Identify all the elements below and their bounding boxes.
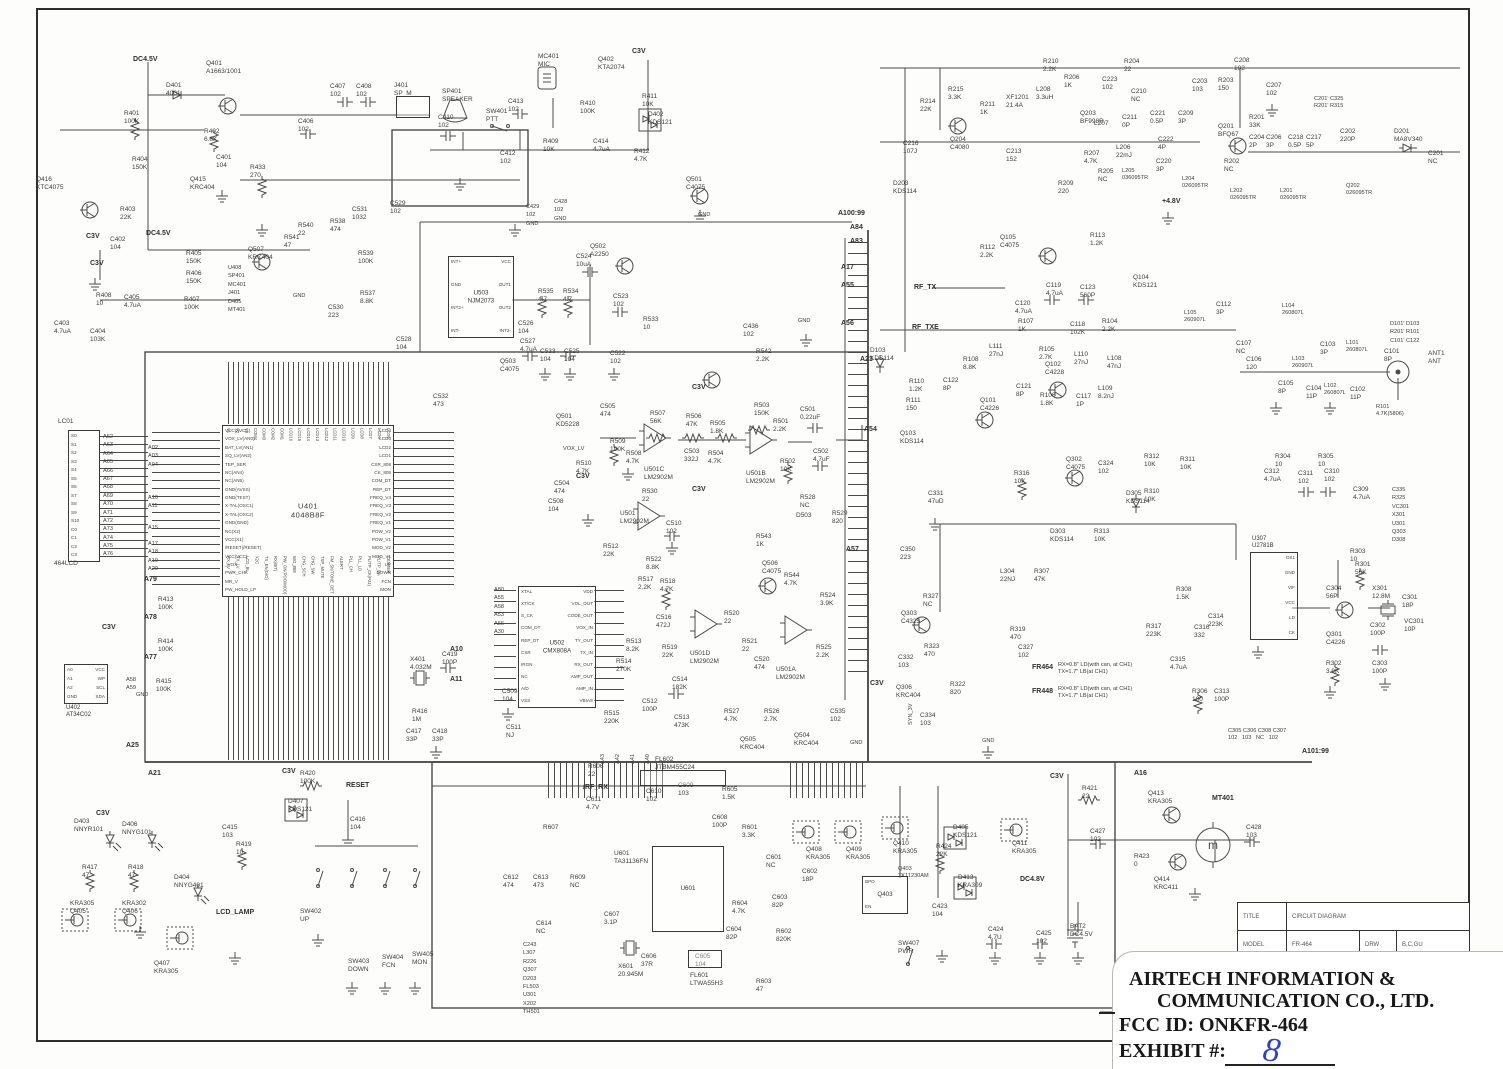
component-label: R524 3.9K bbox=[820, 592, 836, 608]
component-label: U601 TA31136FN bbox=[614, 850, 648, 866]
component-label: C104 11P bbox=[1306, 385, 1322, 401]
net-label: C3V bbox=[692, 384, 706, 393]
pin-label: PLL_CH bbox=[348, 556, 352, 594]
pin-label: A0 bbox=[67, 668, 73, 673]
pin-label: GND(AVSS) bbox=[225, 488, 250, 493]
component-label: C103 3P bbox=[1320, 341, 1336, 357]
component-label: GND bbox=[293, 293, 305, 300]
pin-label: S8 bbox=[71, 502, 77, 507]
component-label: R503 150K bbox=[754, 402, 770, 418]
component-label: C107 NC bbox=[1236, 340, 1252, 356]
net-label: A78 bbox=[144, 614, 157, 623]
transistor-symbol bbox=[1335, 602, 1353, 618]
component-label: R411 10K bbox=[642, 93, 657, 109]
net-label: C3V bbox=[282, 768, 296, 777]
component-label: C527 4.7uA bbox=[520, 338, 537, 354]
component-label: MC401 MIC bbox=[538, 53, 559, 69]
pin-label: VCC bbox=[1285, 601, 1295, 606]
pin-label: VSS bbox=[521, 699, 530, 704]
component-label: A80 A55 A58 A53 A66 A30 bbox=[494, 586, 504, 636]
ic-pins-left: XTALXT/CKS_CKCOM_DTREP_DTCSRIRGNNCA/DVSS bbox=[521, 590, 540, 704]
component-label: Q401 A1663/1001 bbox=[206, 60, 241, 76]
component-label: R404 150K bbox=[132, 156, 148, 172]
transistor-symbol bbox=[1168, 854, 1186, 870]
pin-label: FREQ_V1 bbox=[370, 521, 391, 526]
pin-label: V3 bbox=[244, 428, 248, 441]
pin-label: POW_V2 bbox=[372, 530, 391, 535]
component-label: L205 036095TR bbox=[1122, 168, 1148, 182]
component-label: C312 4.7uA bbox=[1264, 468, 1281, 484]
pin-label: NC(AN5) bbox=[225, 479, 244, 484]
component-label: ANT1 ANT bbox=[1428, 350, 1445, 366]
component-label: C324 102 bbox=[1098, 460, 1114, 476]
component-label: D413 KRA309 bbox=[958, 874, 982, 890]
ic-pins-left: S0S1S2S3S4S5S6S7S8S9S10C0C1C2C3 bbox=[71, 434, 79, 558]
component-label: Q503 C4075 bbox=[500, 358, 519, 374]
component-label: R327 NC bbox=[923, 593, 939, 609]
component-label: R513 8.2K bbox=[626, 638, 642, 654]
component-label: C335 R325 VC301 X301 U301 Q303 D308 bbox=[1392, 486, 1409, 545]
stamp-company-line2: COMMUNICATION CO., LTD. bbox=[1157, 990, 1434, 1013]
component-label: R542 2.2K bbox=[756, 348, 772, 364]
component-label: C314 223K bbox=[1208, 613, 1224, 629]
component-label: D406 NNYG101 bbox=[122, 821, 152, 837]
stamp-company-line1: AIRTECH INFORMATION & bbox=[1129, 968, 1396, 991]
led-symbol bbox=[106, 831, 121, 851]
pin-label: IRGN bbox=[521, 663, 532, 668]
pin-label: REP_DT bbox=[521, 639, 539, 644]
component-label: R521 22 bbox=[742, 638, 758, 654]
component-label: C503 332J bbox=[684, 448, 700, 464]
component-label: Q501 KD5228 bbox=[556, 413, 580, 429]
net-label: A84 bbox=[850, 224, 863, 233]
pin-label: COM_DT bbox=[521, 626, 540, 631]
pin-label: ALERT bbox=[339, 556, 343, 594]
component-label: C601 NC bbox=[766, 854, 782, 870]
component-label: A58 A59 bbox=[126, 676, 136, 693]
pin-label: LCD16 bbox=[288, 428, 292, 441]
component-label: D103 KDS114 bbox=[870, 347, 894, 363]
pin-label: XTAL bbox=[521, 590, 532, 595]
component-label: L204 026095TR bbox=[1182, 176, 1208, 190]
component-label: D203 KDS114 bbox=[893, 180, 917, 196]
component-label: D101' D103 R201' R101 C101' C122 bbox=[1390, 320, 1419, 345]
component-label: C413 102 bbox=[508, 98, 524, 114]
diode-symbol bbox=[1399, 144, 1417, 152]
component-label: C513 473K bbox=[674, 714, 690, 730]
pin-label: S7 bbox=[71, 494, 77, 499]
component-label: C602 18P bbox=[802, 868, 818, 884]
ground-symbol bbox=[800, 334, 812, 346]
component-label: C309 4.7uA bbox=[1353, 486, 1370, 502]
net-label: A79 bbox=[144, 576, 157, 585]
component-label: L110 27nJ bbox=[1074, 351, 1088, 367]
component-label: R405 150K bbox=[186, 250, 202, 266]
component-label: R537 8.8K bbox=[360, 290, 376, 306]
component-label: C603 82P bbox=[772, 894, 788, 910]
component-label: SW401 PTT bbox=[486, 108, 507, 124]
transistor-symbol bbox=[218, 98, 236, 114]
pin-label: DS1 bbox=[1286, 556, 1295, 561]
component-label: C305 C306 C308 C307 102 103 NC 102 bbox=[1228, 728, 1286, 742]
pin-label: CHG_SW bbox=[311, 556, 315, 594]
pin-label: LCD1 bbox=[379, 454, 391, 459]
component-label: A10 A11 bbox=[148, 494, 158, 511]
component-label: L208 3.3uH bbox=[1036, 86, 1053, 102]
pin-label: GND(TEST) bbox=[225, 496, 250, 501]
component-label: C509 104 bbox=[502, 688, 518, 704]
pin-label: A/D bbox=[521, 687, 529, 692]
net-label: A57 bbox=[846, 546, 859, 555]
component-label: Q101 C4226 bbox=[980, 397, 999, 413]
ground-symbol bbox=[982, 746, 994, 758]
component-label: C210 NC bbox=[1131, 88, 1147, 104]
resistor-symbol bbox=[646, 434, 668, 442]
resistor-symbol bbox=[682, 434, 704, 442]
pin-label: S9 bbox=[71, 511, 77, 516]
pin-label: FREQ_V2 bbox=[370, 513, 391, 518]
transistor-symbol bbox=[80, 202, 98, 218]
component-label: R406 150K bbox=[186, 270, 202, 286]
pin-label: /RESET(/RESET) bbox=[225, 546, 261, 551]
capacitor-symbol bbox=[807, 423, 823, 433]
ground-symbol bbox=[216, 190, 228, 202]
net-label: A100:99 bbox=[838, 210, 865, 219]
component-label: C404 103K bbox=[90, 328, 106, 344]
component-label: C201' C325 R201' R315 bbox=[1314, 96, 1343, 110]
component-label: R418 47 bbox=[128, 864, 144, 880]
title-block-row-title: TITLE CIRCUIT DIAGRAM bbox=[1238, 903, 1469, 931]
component-label: R302 3.9K bbox=[1326, 660, 1342, 676]
component-label: R416 1M bbox=[412, 708, 428, 724]
ground-symbol bbox=[989, 952, 1001, 964]
ic-pins-right: VDDVOL_OUTCODE_OUTVOX_INTY_OUTTX_INRX_OU… bbox=[567, 590, 593, 704]
ic-pins-left: INT+GNDINT2+INT- bbox=[451, 260, 464, 334]
component-label: L109 8.2nJ bbox=[1098, 385, 1114, 401]
component-label: Q415 KRC404 bbox=[190, 176, 215, 192]
net-label: A21 bbox=[148, 770, 161, 779]
component-label: R401 100K bbox=[124, 110, 140, 126]
pin-label: OUT2 bbox=[499, 306, 511, 311]
component-label: Q105 C4075 bbox=[1000, 234, 1019, 250]
pin-label: LCD9 bbox=[350, 428, 354, 441]
component-label: R207 4.7K bbox=[1084, 150, 1100, 166]
component-label: C606 37R bbox=[641, 953, 657, 969]
component-label: Q202 026095TR bbox=[1346, 183, 1372, 197]
component-label: C206 3P bbox=[1266, 134, 1282, 150]
pin-label: CSR_808 bbox=[371, 463, 391, 468]
component-label: R408 10 bbox=[96, 292, 112, 308]
ground-symbol bbox=[379, 982, 391, 994]
component-label: C423 104 bbox=[932, 903, 948, 919]
pin-label: CENTER bbox=[386, 556, 390, 594]
component-label: C607 3.1P bbox=[604, 911, 620, 927]
component-label: D303 KDS114 bbox=[1050, 528, 1074, 544]
ic-pins-right: VCCOUT1OUT2INT2- bbox=[499, 260, 511, 334]
component-label: Q408 KRA305 bbox=[806, 846, 830, 862]
component-label: R305 10 bbox=[1318, 453, 1334, 469]
antenna-connector-symbol bbox=[1382, 361, 1409, 383]
ic-FL602 bbox=[640, 770, 726, 786]
stamp-pointer-line bbox=[1099, 1012, 1115, 1014]
pin-label: INT- bbox=[451, 329, 460, 334]
component-label: C502 4.7uF bbox=[813, 448, 830, 464]
net-label: A25 bbox=[126, 742, 139, 751]
pin-label: CSR bbox=[521, 651, 531, 656]
component-label: A62 A63 A64 A65 A66 A67 A68 A69 A70 A71 … bbox=[103, 433, 113, 559]
component-label: X401 4.032M bbox=[410, 656, 432, 672]
component-label: C316 332 bbox=[1194, 624, 1210, 640]
pin-label: GND bbox=[67, 695, 77, 700]
component-label: SW403 DOWN bbox=[348, 958, 369, 974]
component-label: C410 102 bbox=[438, 114, 454, 130]
capacitor-symbol bbox=[1320, 487, 1336, 497]
pin-label: SCL bbox=[96, 686, 105, 691]
component-label: R112 2.2K bbox=[980, 244, 995, 260]
component-label: C504 474 bbox=[554, 480, 570, 496]
pin-label: TY_OUT bbox=[575, 639, 593, 644]
component-label: C429 102 GND bbox=[526, 203, 539, 228]
pin-label: LCD15 bbox=[297, 428, 301, 441]
component-label: C334 103 bbox=[920, 712, 936, 728]
component-label: C612 474 bbox=[503, 874, 519, 890]
net-label: C3V bbox=[692, 486, 706, 495]
pin-label: LCD8 bbox=[359, 428, 363, 441]
pin-label: S2 bbox=[71, 451, 77, 456]
component-label: C613 473 bbox=[533, 874, 549, 890]
component-label: R403 22K bbox=[120, 206, 136, 222]
component-label: D405 KDS121 bbox=[953, 824, 977, 840]
pin-label: X2C bbox=[254, 556, 258, 594]
component-label: R504 4.7K bbox=[708, 450, 724, 466]
pin-label: LCD12 bbox=[324, 428, 328, 441]
component-label: C524 10uA bbox=[576, 253, 592, 269]
component-label: R417 47 bbox=[82, 864, 98, 880]
component-label: R108 8.8K bbox=[963, 356, 979, 372]
wire-bus bbox=[152, 432, 220, 592]
pin-label: TX_EN(DIO) bbox=[264, 556, 268, 594]
net-label: A17 bbox=[841, 264, 854, 273]
wire-bus bbox=[594, 590, 624, 704]
component-label: L111 27nJ bbox=[989, 343, 1003, 359]
component-label: C608 100P bbox=[712, 814, 728, 830]
pin-label: XT/CK bbox=[521, 602, 535, 607]
component-label: R424 22K bbox=[936, 843, 952, 859]
net-label: C3V bbox=[576, 473, 590, 482]
net-label: A56 bbox=[841, 320, 854, 329]
component-label: C350 223 bbox=[900, 546, 916, 562]
fcc-stamp: AIRTECH INFORMATION & COMMUNICATION CO.,… bbox=[1112, 951, 1503, 1069]
component-label: C531 1032 bbox=[352, 206, 368, 222]
pin-label: TX_LV bbox=[235, 556, 239, 594]
pin-label: VDD bbox=[583, 590, 593, 595]
title-label: TITLE bbox=[1238, 903, 1286, 930]
component-label: GND bbox=[136, 692, 148, 699]
pin-label: S3 bbox=[71, 460, 77, 465]
pin-label: LCD_BL bbox=[245, 556, 249, 594]
component-label: VOX_LV bbox=[563, 446, 584, 453]
component-label: R113 1.2K bbox=[1090, 232, 1105, 248]
component-label: A42 bbox=[615, 754, 622, 764]
transistor-symbol bbox=[615, 258, 633, 274]
pin-label: S5 bbox=[71, 477, 77, 482]
ground-symbol bbox=[1324, 686, 1336, 698]
component-label: R311 10K bbox=[1180, 456, 1195, 472]
component-label: C522 102 bbox=[610, 350, 626, 366]
pin-label: COM4 bbox=[253, 428, 257, 441]
ground-symbol bbox=[936, 950, 948, 962]
pin-label: PLL_LD bbox=[357, 556, 361, 594]
component-label: L304 22NJ bbox=[1000, 568, 1015, 584]
component-label: U408 SP401 MC401 J401 D405 MT401 bbox=[228, 264, 246, 314]
pin-label: VBIAS bbox=[579, 699, 593, 704]
component-label: R606 22 bbox=[588, 763, 604, 779]
component-label: C520 474 bbox=[754, 656, 770, 672]
ic-Q403: Q403BPOEN bbox=[862, 876, 908, 914]
ground-symbol bbox=[1162, 212, 1174, 224]
ground-symbol bbox=[346, 982, 358, 994]
net-label: /RF_RX bbox=[583, 784, 608, 793]
net-label: A11 bbox=[450, 676, 462, 685]
component-label: C512 100P bbox=[642, 698, 658, 714]
component-label: C510 102 bbox=[666, 520, 682, 536]
ground-symbol bbox=[256, 224, 268, 236]
component-label: D201 MA8V340 bbox=[1394, 128, 1423, 144]
ground-symbol bbox=[312, 934, 324, 946]
pin-label: WO_808 bbox=[292, 556, 296, 594]
component-label: C106 120 bbox=[1246, 356, 1262, 372]
component-label: Q411 KRA305 bbox=[1012, 840, 1036, 856]
pin-label: VIF bbox=[1288, 586, 1295, 591]
pin-label: SQ_LV(AN2) bbox=[225, 454, 251, 459]
component-label: U501 LM2902M bbox=[620, 510, 649, 526]
component-label: R201 33K bbox=[1249, 114, 1265, 130]
component-label: R409 10K bbox=[543, 138, 559, 154]
net-label: +4.8V bbox=[1162, 198, 1181, 207]
pin-label: POW_V1 bbox=[372, 538, 391, 543]
ic-pins-left: BPOEN bbox=[865, 880, 875, 910]
component-label: Q103 KDS114 bbox=[900, 430, 924, 446]
pin-label: EN bbox=[865, 905, 871, 910]
pin-label: S4 bbox=[71, 468, 77, 473]
component-label: R522 8.8K bbox=[646, 556, 662, 572]
pin-label: WP bbox=[98, 677, 105, 682]
pin-label: S6 bbox=[71, 485, 77, 490]
component-label: C416 104 bbox=[350, 816, 366, 832]
component-label: R407 100K bbox=[184, 296, 200, 312]
component-label: R538 474 bbox=[330, 218, 346, 234]
component-label: Q303 C4325 bbox=[901, 610, 920, 626]
pin-label: C2 bbox=[71, 545, 77, 550]
ic-pins-right: VCCWPSCLSDA bbox=[95, 668, 105, 700]
component-label: R505 1.8K bbox=[710, 420, 726, 436]
pin-label: FM_SN/TONE_DET bbox=[329, 556, 333, 594]
component-label: R319 470 bbox=[1010, 626, 1026, 642]
component-label: D403 NNYR101 bbox=[74, 818, 103, 834]
pin-label: V2 bbox=[235, 428, 239, 441]
ground-symbol bbox=[666, 542, 678, 554]
pin-label: INT2- bbox=[500, 329, 511, 334]
crystal-symbol bbox=[620, 941, 640, 955]
component-label: R540 22 bbox=[298, 222, 314, 238]
title-block: TITLE CIRCUIT DIAGRAM MODEL FR-464 DRW B… bbox=[1237, 902, 1470, 958]
component-label: C315 4.7uA bbox=[1170, 656, 1187, 672]
component-label: BAT2 DC4.5V bbox=[1070, 923, 1093, 939]
component-label: C424 4.7U bbox=[988, 926, 1004, 942]
pin-label: INT+ bbox=[451, 260, 461, 265]
component-label: C528 104 bbox=[396, 336, 412, 352]
component-label: C511 NJ bbox=[506, 724, 521, 740]
pin-label: MOD_V2 bbox=[372, 546, 391, 551]
component-label: C122 8P bbox=[943, 377, 959, 393]
component-label: R527 4.7K bbox=[724, 708, 740, 724]
component-label: C412 102 bbox=[500, 150, 516, 166]
component-label: R402 6.8K bbox=[204, 128, 220, 144]
component-label: Q104 KDS121 bbox=[1133, 274, 1157, 290]
component-label: D407 KDS121 bbox=[288, 798, 312, 814]
component-label: R107 1K bbox=[1018, 318, 1034, 334]
component-label: Q413 KRA305 bbox=[1148, 790, 1172, 806]
component-label: C123 560P bbox=[1080, 284, 1096, 300]
component-label: R525 2.2K bbox=[816, 644, 832, 660]
component-label: SP401 SPEAKER bbox=[442, 88, 473, 104]
ground-symbol bbox=[539, 368, 551, 380]
component-label: A41 bbox=[630, 754, 637, 764]
component-label: C301 18P bbox=[1402, 594, 1418, 610]
wire-bus bbox=[228, 362, 390, 424]
component-label: Q301 C4226 bbox=[1326, 631, 1345, 647]
net-label: DC4.8V bbox=[1020, 876, 1045, 885]
component-label: Q102 C4228 bbox=[1045, 361, 1064, 377]
pin-label: GND(GND) bbox=[225, 521, 248, 526]
component-label: C610 102 bbox=[646, 788, 662, 804]
component-label: R603 47 bbox=[756, 978, 772, 994]
component-label: C201 NC bbox=[1428, 150, 1444, 166]
ground-symbol bbox=[1034, 952, 1046, 964]
component-label: R512 22K bbox=[603, 543, 619, 559]
component-label: L101 260807L bbox=[1346, 340, 1368, 354]
motor-symbol: m bbox=[1196, 822, 1230, 868]
component-label: C505 474 bbox=[600, 403, 616, 419]
pin-label: C1 bbox=[71, 536, 77, 541]
ground-symbol bbox=[1379, 678, 1391, 690]
net-label: A54 bbox=[864, 426, 877, 435]
pin-label: LCD2 bbox=[379, 446, 391, 451]
component-label: RX=0.8" LD(with can, at CH1) TX=1.7" LB(… bbox=[1058, 662, 1132, 676]
pin-label: LCD11 bbox=[333, 428, 337, 441]
component-label: KRA302 Q406 bbox=[122, 900, 146, 916]
transistor-symbol bbox=[1228, 138, 1246, 154]
component-label: GND bbox=[982, 738, 994, 745]
switch-symbol bbox=[317, 869, 324, 888]
pin-label: LCD13 bbox=[315, 428, 319, 441]
pin-label: COM1 bbox=[279, 428, 283, 441]
component-label: C611 4.7V bbox=[586, 796, 601, 812]
component-label: A40 bbox=[645, 754, 652, 764]
net-label: A55 bbox=[841, 282, 854, 291]
pin-label: COM2 bbox=[270, 428, 274, 441]
component-label: R502 10K bbox=[780, 458, 796, 474]
ground-symbol bbox=[430, 746, 442, 758]
component-label: Q501 C4075 bbox=[686, 176, 705, 192]
component-label: R421 22 bbox=[1082, 785, 1098, 801]
component-label: Q505 KRC404 bbox=[740, 736, 765, 752]
opamp-symbol bbox=[690, 610, 722, 638]
component-label: C105 8P bbox=[1278, 380, 1294, 396]
pin-label: GND bbox=[451, 283, 461, 288]
component-label: R604 4.7K bbox=[732, 900, 748, 916]
component-label: R433 270 bbox=[250, 164, 266, 180]
